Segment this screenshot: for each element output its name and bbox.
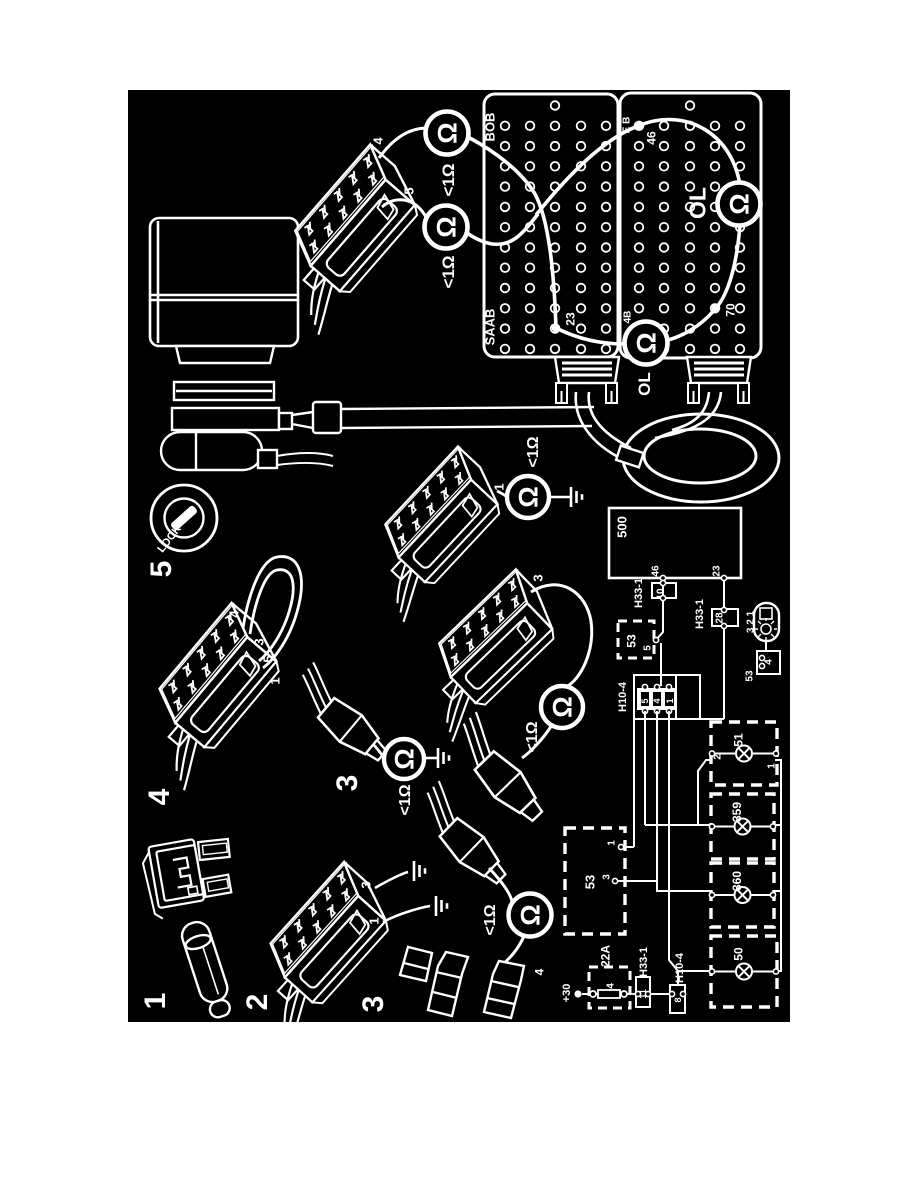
svg-text:3: 3 xyxy=(531,574,546,581)
svg-text:H10-4: H10-4 xyxy=(617,681,629,712)
svg-text:500: 500 xyxy=(615,516,630,538)
svg-text:3: 3 xyxy=(357,996,390,1013)
svg-text:H33-1: H33-1 xyxy=(633,578,645,608)
svg-text:4: 4 xyxy=(227,610,242,618)
svg-text:4: 4 xyxy=(764,659,775,665)
svg-text:70: 70 xyxy=(723,303,737,317)
svg-text:OL: OL xyxy=(684,187,710,219)
svg-text:5: 5 xyxy=(643,645,654,651)
svg-text:5: 5 xyxy=(261,655,276,662)
svg-text:3: 3 xyxy=(602,874,613,880)
svg-text:Ω: Ω xyxy=(433,122,463,144)
svg-text:Ω: Ω xyxy=(725,193,755,215)
svg-text:Ω: Ω xyxy=(548,696,578,718)
svg-text:+30: +30 xyxy=(561,984,573,1003)
svg-text:4: 4 xyxy=(606,983,617,989)
svg-text:<1Ω: <1Ω xyxy=(397,784,414,815)
svg-text:53: 53 xyxy=(745,670,756,682)
svg-text:Ω: Ω xyxy=(390,748,420,770)
svg-text:8: 8 xyxy=(673,997,683,1002)
svg-text:H33-1: H33-1 xyxy=(694,599,706,629)
svg-text:H33-1: H33-1 xyxy=(638,947,650,977)
svg-text:OL: OL xyxy=(635,372,654,396)
svg-text:1: 1 xyxy=(767,763,778,769)
svg-text:1: 1 xyxy=(607,840,618,846)
svg-text:2: 2 xyxy=(713,754,724,760)
svg-text:5: 5 xyxy=(402,187,417,194)
svg-text:1: 1 xyxy=(268,677,283,684)
svg-text:SAAB: SAAB xyxy=(483,309,498,346)
svg-text:4: 4 xyxy=(371,137,386,145)
svg-text:5: 5 xyxy=(640,698,650,703)
svg-text:<1Ω: <1Ω xyxy=(439,163,458,196)
svg-text:3: 3 xyxy=(252,638,267,645)
svg-text:1: 1 xyxy=(492,483,507,490)
svg-text:46: 46 xyxy=(651,565,662,577)
svg-text:Ω: Ω xyxy=(514,486,544,508)
svg-text:3 2 1: 3 2 1 xyxy=(746,610,757,633)
svg-text:4: 4 xyxy=(652,698,662,703)
svg-text:4: 4 xyxy=(143,788,176,805)
svg-text:Ω: Ω xyxy=(632,332,662,354)
svg-text:1: 1 xyxy=(139,993,172,1010)
svg-text:53: 53 xyxy=(624,634,638,648)
svg-text:46: 46 xyxy=(644,131,658,145)
svg-text:5: 5 xyxy=(145,561,178,578)
svg-text:BOB: BOB xyxy=(483,113,498,142)
svg-text:28: 28 xyxy=(715,612,726,624)
svg-text:1: 1 xyxy=(367,917,382,924)
svg-text:3: 3 xyxy=(331,775,364,792)
svg-text:Ω: Ω xyxy=(432,216,462,238)
svg-text:50: 50 xyxy=(731,947,745,961)
svg-text:53: 53 xyxy=(583,875,598,889)
svg-text:1: 1 xyxy=(665,698,675,703)
svg-text:4B: 4B xyxy=(623,311,634,324)
svg-text:360: 360 xyxy=(730,871,744,891)
svg-text:<1Ω: <1Ω xyxy=(439,255,458,288)
svg-text:359: 359 xyxy=(730,802,744,822)
svg-text:4: 4 xyxy=(532,968,546,975)
svg-text:51: 51 xyxy=(731,733,745,747)
svg-text:H10-4: H10-4 xyxy=(674,952,686,983)
svg-text:<1Ω: <1Ω xyxy=(525,436,542,467)
svg-text:23: 23 xyxy=(712,565,723,577)
svg-text:<1Ω: <1Ω xyxy=(482,904,499,935)
svg-text:23: 23 xyxy=(563,312,577,326)
svg-text:3: 3 xyxy=(359,881,374,888)
svg-text:Ω: Ω xyxy=(516,904,546,926)
svg-text:22A: 22A xyxy=(598,945,612,967)
svg-text:2: 2 xyxy=(241,994,274,1011)
